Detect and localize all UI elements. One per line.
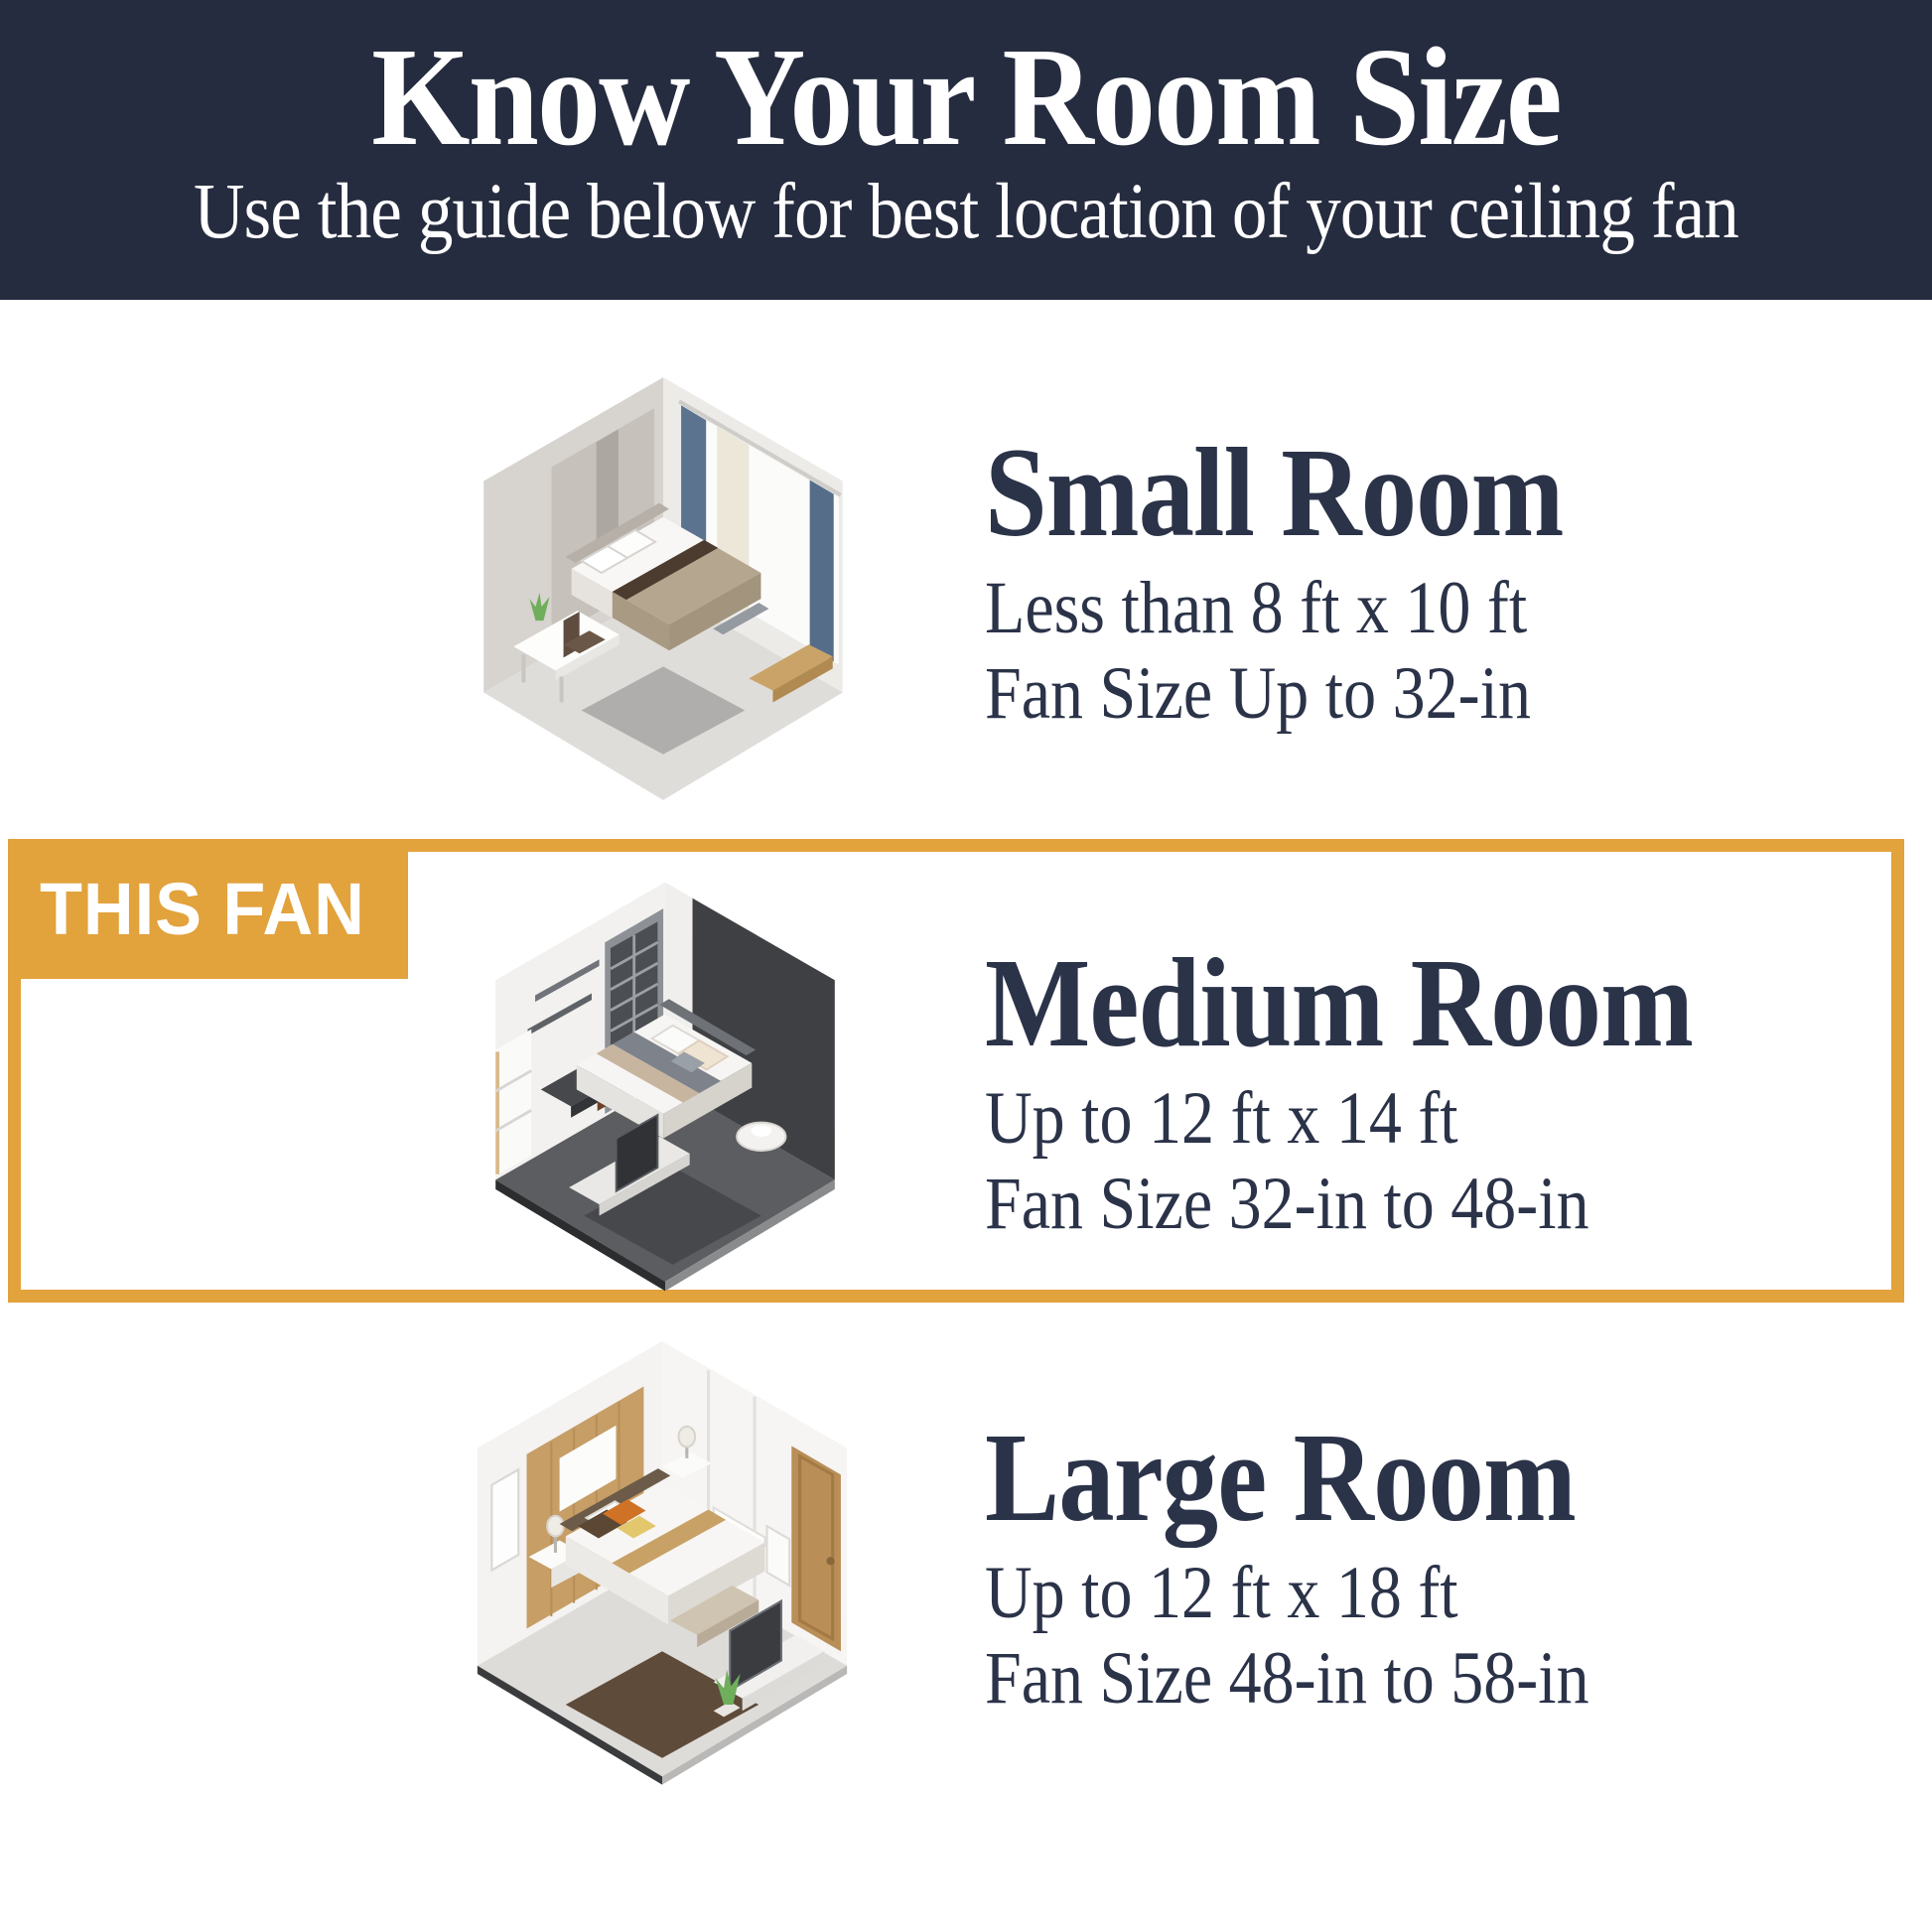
isometric-small-bedroom-icon xyxy=(405,349,921,818)
medium-room-title: Medium Room xyxy=(985,939,1693,1066)
small-room-title: Small Room xyxy=(985,429,1564,556)
header-banner: Know Your Room Size Use the guide below … xyxy=(0,0,1932,300)
this-fan-badge-label: THIS FAN xyxy=(40,867,365,951)
small-room-illustration xyxy=(405,349,921,818)
isometric-medium-bedroom-icon xyxy=(417,856,913,1299)
large-room-title: Large Room xyxy=(985,1414,1589,1541)
small-room-dimensions: Less than 8 ft x 10 ft xyxy=(985,566,1564,651)
room-size-infographic: Know Your Room Size Use the guide below … xyxy=(0,0,1932,1932)
page-title: Know Your Room Size xyxy=(96,0,1835,167)
large-room-illustration xyxy=(402,1312,922,1795)
medium-room-text: Medium Room Up to 12 ft x 14 ft Fan Size… xyxy=(985,939,1789,1246)
medium-room-dimensions: Up to 12 ft x 14 ft xyxy=(985,1076,1693,1162)
isometric-large-bedroom-icon xyxy=(402,1312,922,1795)
small-room-fan-size: Fan Size Up to 32-in xyxy=(985,651,1564,737)
large-room-fan-size: Fan Size 48-in to 58-in xyxy=(985,1636,1589,1722)
page-subtitle: Use the guide below for best location of… xyxy=(96,167,1835,251)
small-room-text: Small Room Less than 8 ft x 10 ft Fan Si… xyxy=(985,429,1642,736)
this-fan-badge: THIS FAN xyxy=(8,839,408,979)
medium-room-illustration xyxy=(417,856,913,1299)
medium-room-fan-size: Fan Size 32-in to 48-in xyxy=(985,1162,1693,1247)
large-room-text: Large Room Up to 12 ft x 18 ft Fan Size … xyxy=(985,1414,1672,1721)
large-room-dimensions: Up to 12 ft x 18 ft xyxy=(985,1551,1589,1636)
